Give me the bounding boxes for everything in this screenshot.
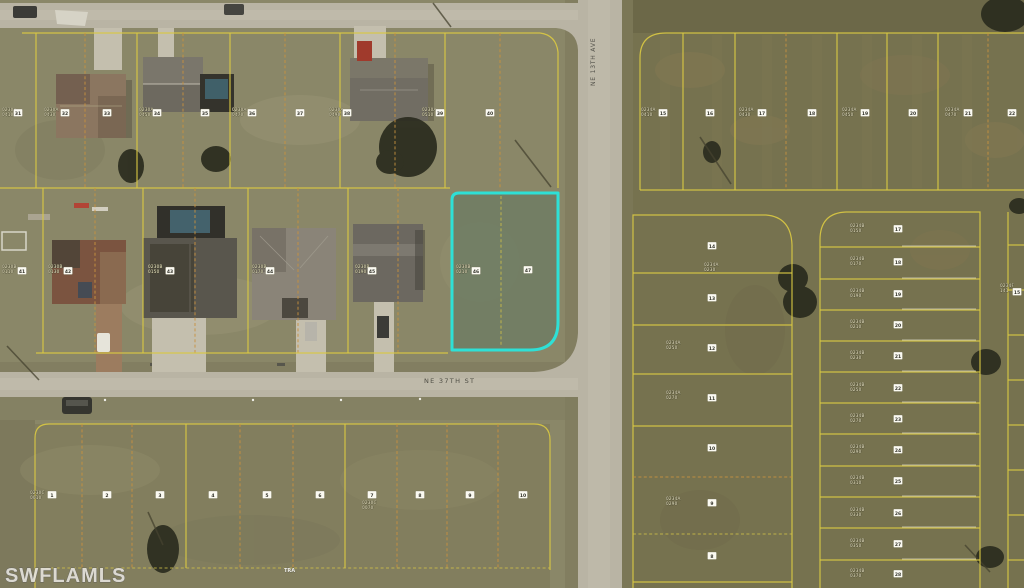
parcel-number-text: 22 (895, 386, 901, 392)
parcel-id-label: 0370 (850, 573, 862, 578)
parcel-id-label: 0410 (641, 112, 653, 117)
tree-canopy (201, 146, 231, 172)
parcel-number-text: 38 (344, 111, 350, 117)
parcel-number-text: 11 (709, 396, 715, 402)
parcel-number-text: 22 (1009, 111, 1015, 117)
parcel-id-label: 0210 (456, 269, 468, 274)
parcel-id-label: 0290 (666, 501, 678, 506)
subject-lot-interior (452, 193, 558, 350)
storm-drain (277, 363, 285, 366)
solar-panels (78, 282, 92, 298)
parcel-number-text: 10 (520, 493, 526, 499)
tree-canopy (118, 149, 144, 183)
red-car (357, 41, 372, 61)
parcel-id-label: 0410 (2, 112, 14, 117)
parcel-number-text: 42 (65, 269, 71, 275)
parcel-number-text: 41 (19, 269, 25, 275)
parcel-number-text: 20 (895, 323, 901, 329)
parcel-id-label: 0190 (355, 269, 367, 274)
parcel-id-label: 0250 (666, 345, 678, 350)
parcel-number-text: 25 (895, 479, 901, 485)
parcel-number-text: 2 (105, 493, 108, 499)
house-mid-1 (52, 240, 126, 304)
kayak (28, 214, 50, 220)
parcel-id-label: 0270 (666, 395, 678, 400)
parcel-number-text: 7 (370, 493, 373, 499)
parcel-number-text: 9 (710, 501, 713, 507)
parcel-number-text: 39 (437, 111, 443, 117)
parcel-id-label: 0110 (2, 269, 14, 274)
parcel-number-text: 12 (709, 346, 715, 352)
parcel-id-label: 0510 (422, 112, 434, 117)
dark-car (224, 4, 244, 15)
parcel-id-label: 0070 (362, 505, 374, 510)
parcel-number-text: 35 (202, 111, 208, 117)
silver-car (305, 322, 317, 341)
parcel-number-text: 17 (895, 227, 901, 233)
dark-car (377, 316, 389, 338)
aerial-parcel-map: 0230A04100230A04300230A04500230A04700230… (0, 0, 1024, 588)
parcel-number-text: 21 (895, 354, 901, 360)
parcel-id-label: 0250 (850, 387, 862, 392)
parcel-number-text: 19 (862, 111, 868, 117)
parcel-id-label: 0230 (704, 267, 716, 272)
parcel-number-text: 1 (50, 493, 53, 499)
parcel-number-text: 46 (473, 269, 479, 275)
parcel-number-text: 44 (267, 269, 273, 275)
tract-label: TRA (284, 568, 295, 574)
parcel-number-text: 40 (487, 111, 493, 117)
parcel-number-text: 45 (369, 269, 375, 275)
parcel-number-text: 13 (709, 296, 715, 302)
parcel-id-label: 0470 (232, 112, 244, 117)
parcel-number-text: 15 (1014, 290, 1020, 296)
street-label-ne-37th-st: NE 37TH ST (424, 377, 475, 385)
parcel-number-text: 18 (895, 260, 901, 266)
parcel-number-text: 24 (895, 448, 901, 454)
parcel-number-text: 19 (895, 292, 901, 298)
parcel-id-label: 141 (1000, 288, 1009, 293)
parcel-number-text: 5 (265, 493, 268, 499)
parcel-number-text: 43 (167, 269, 173, 275)
parcel-number-text: 4 (211, 493, 214, 499)
parcel-id-label: 0430 (739, 112, 751, 117)
parcel-id-label: 0350 (850, 543, 862, 548)
pool (170, 210, 210, 233)
parcel-id-label: 0310 (850, 480, 862, 485)
parcel-number-text: 47 (525, 268, 531, 274)
parcel-number-text: 32 (62, 111, 68, 117)
parcel-id-label: 0450 (842, 112, 854, 117)
parcel-number-text: 21 (965, 111, 971, 117)
parcel-id-label: 0270 (850, 418, 862, 423)
parcel-id-label: 0230 (850, 355, 862, 360)
parcel-id-label: 0130 (48, 269, 60, 274)
parcel-id-label: 0170 (252, 269, 264, 274)
parcel-number-text: 33 (104, 111, 110, 117)
parcel-id-label: 0170 (850, 261, 862, 266)
mls-watermark: SWFLAMLS (5, 565, 126, 587)
parcel-number-text: 26 (895, 511, 901, 517)
parcel-number-text: 8 (710, 554, 713, 560)
tree-canopy (147, 525, 179, 573)
parcel-number-text: 8 (418, 493, 421, 499)
parcel-number-text: 10 (709, 446, 715, 452)
parcel-number-text: 9 (468, 493, 471, 499)
parcel-number-text: 14 (709, 244, 715, 250)
parcel-id-label: 0330 (850, 512, 862, 517)
parcel-id-label: 0290 (850, 449, 862, 454)
parcel-number-text: 31 (15, 111, 21, 117)
parcel-number-text: 23 (895, 417, 901, 423)
parcel-id-label: 0190 (850, 293, 862, 298)
parcel-id-label: 0430 (44, 112, 56, 117)
parcel-number-text: 34 (154, 111, 160, 117)
boat-on-trailer (55, 10, 88, 26)
parcel-number-text: 15 (660, 111, 666, 117)
parcel-id-label: 0450 (139, 112, 151, 117)
kayak (92, 207, 108, 211)
parcel-number-text: 6 (318, 493, 321, 499)
dark-suv (13, 6, 37, 18)
house-top-a (56, 74, 132, 138)
kayak (74, 203, 89, 208)
parcel-number-text: 17 (759, 111, 765, 117)
parcel-number-text: 27 (895, 542, 901, 548)
parcel-id-label: 0490 (329, 112, 341, 117)
parcel-id-label: 0150 (850, 228, 862, 233)
parcel-id-label: 0010 (30, 495, 42, 500)
parcel-number-text: 18 (809, 111, 815, 117)
parcel-number-text: 37 (297, 111, 303, 117)
parcel-number-text: 20 (910, 111, 916, 117)
parcel-id-label: 0210 (850, 324, 862, 329)
street-label-ne-13th-ave: NE 13TH AVE (590, 38, 597, 86)
white-car (97, 333, 110, 352)
house-mid-2 (143, 206, 237, 318)
driveway (152, 318, 206, 372)
pool (205, 79, 228, 99)
parcel-id-label: 0150 (148, 269, 160, 274)
parcel-number-text: 3 (158, 493, 161, 499)
parcel-number-text: 16 (707, 111, 713, 117)
parcel-number-text: 36 (249, 111, 255, 117)
parcel-number-text: 28 (895, 572, 901, 578)
parcel-id-label: 0470 (945, 112, 957, 117)
